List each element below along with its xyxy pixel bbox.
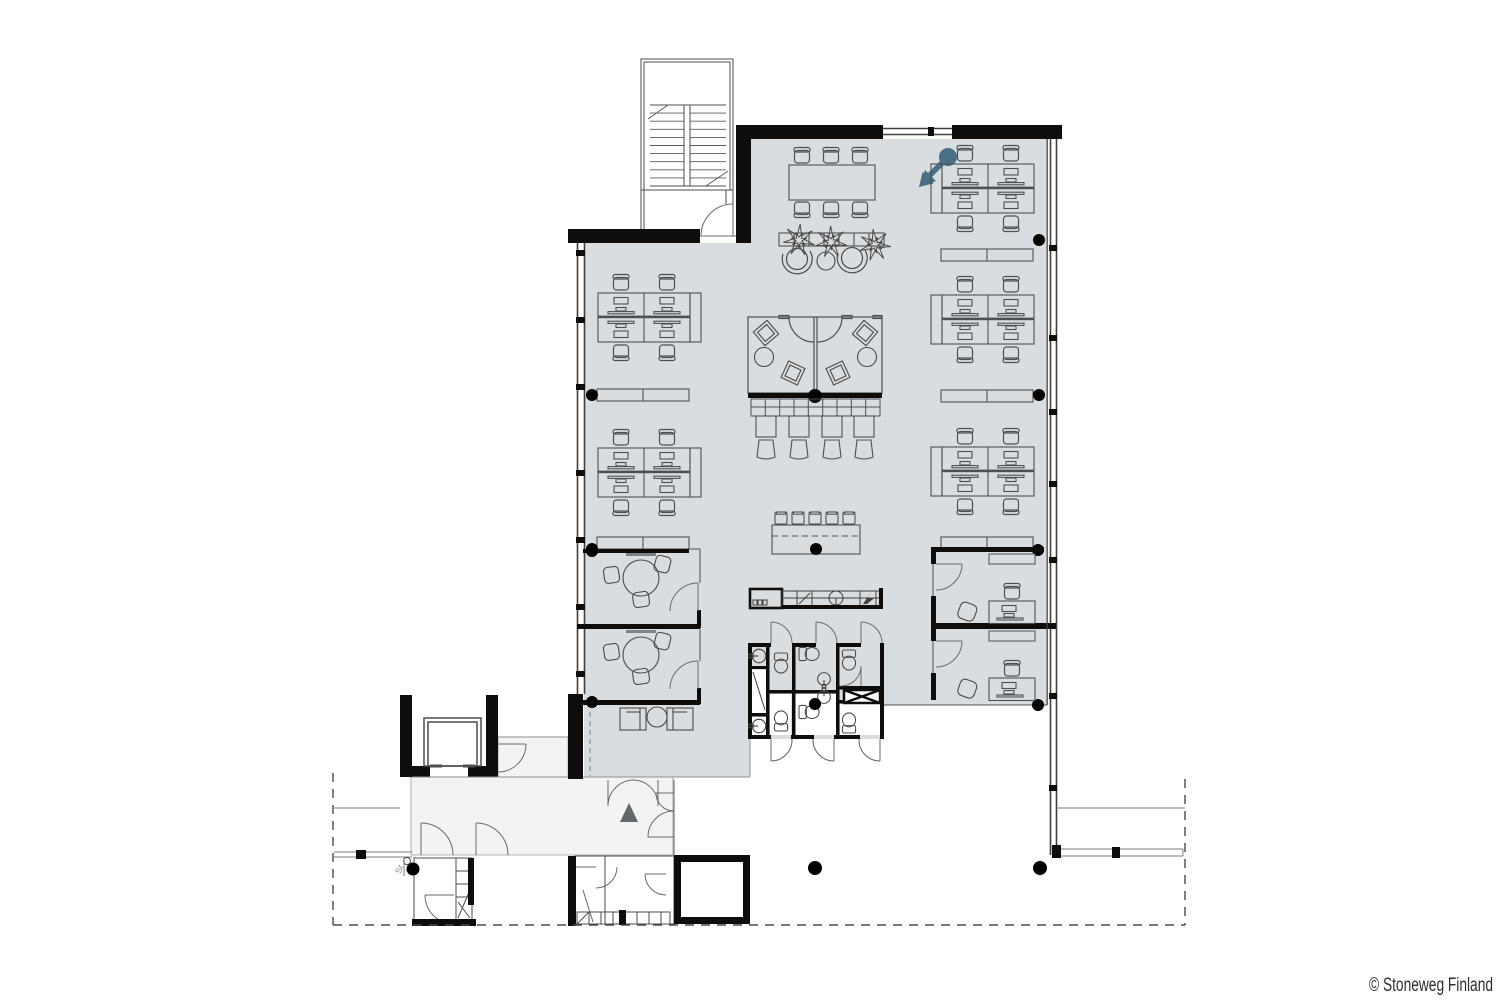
svg-text:© Stoneweg Finland: © Stoneweg Finland [1369,975,1493,996]
